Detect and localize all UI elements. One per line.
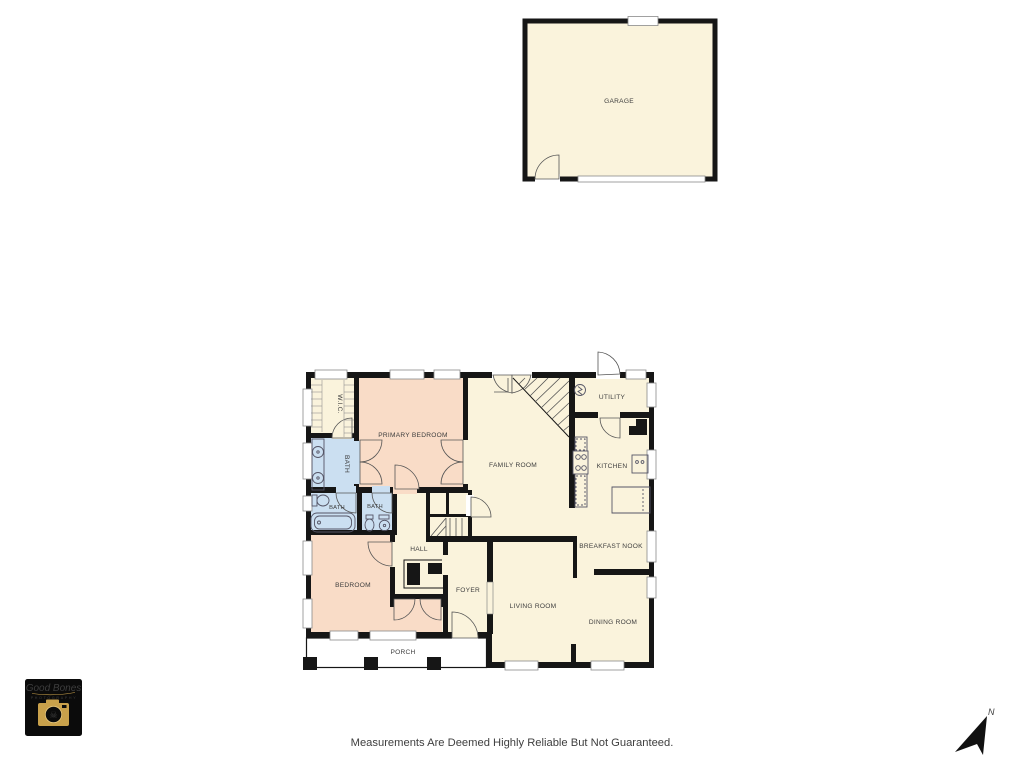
room-label-bath-primary: BATH bbox=[343, 455, 350, 473]
porch-post bbox=[427, 657, 441, 670]
skull-glyph: ☠ bbox=[49, 710, 58, 721]
room-label-living-room: LIVING ROOM bbox=[510, 603, 557, 610]
room-label-kitchen: KITCHEN bbox=[597, 463, 628, 470]
window bbox=[303, 389, 312, 426]
room-label-wic: W.I.C. bbox=[336, 394, 343, 413]
porch-post bbox=[303, 657, 317, 670]
window bbox=[303, 599, 312, 628]
window bbox=[303, 541, 312, 575]
room-label-bedroom: BEDROOM bbox=[335, 582, 371, 589]
floorplan-canvas: GARAGE bbox=[0, 0, 1024, 768]
room-label-breakfast-nook: BREAKFAST NOOK bbox=[579, 543, 643, 550]
room-label-foyer: FOYER bbox=[456, 587, 480, 594]
window bbox=[647, 577, 656, 598]
room-label-bath-hall: BATH bbox=[329, 505, 345, 511]
window bbox=[370, 631, 416, 640]
room-label-hall: HALL bbox=[410, 546, 428, 553]
garage-door-opening bbox=[578, 176, 705, 182]
room-label-utility: UTILITY bbox=[599, 394, 626, 401]
window bbox=[591, 661, 624, 670]
room-label-dining-room: DINING ROOM bbox=[589, 619, 637, 626]
room-label-bath-second: BATH bbox=[367, 504, 383, 510]
brand-logo: Good Bones PHOTOGRAPHY ☠ bbox=[25, 679, 82, 736]
kitchen-chase-notch bbox=[629, 419, 636, 426]
skull-camera-icon: ☠ bbox=[38, 700, 69, 727]
window bbox=[303, 496, 312, 511]
logo-brand-script: Good Bones bbox=[26, 683, 82, 694]
room-label-primary-bedroom: PRIMARY BEDROOM bbox=[378, 432, 447, 439]
closet-divider bbox=[446, 492, 449, 516]
window bbox=[628, 17, 658, 26]
window bbox=[647, 383, 656, 407]
room-label-porch: PORCH bbox=[390, 649, 415, 656]
window bbox=[434, 370, 460, 379]
disclaimer-text: Measurements Are Deemed Highly Reliable … bbox=[351, 737, 674, 749]
room-label-family-room: FAMILY ROOM bbox=[489, 462, 537, 469]
room-label-garage: GARAGE bbox=[604, 98, 634, 105]
garage: GARAGE bbox=[525, 17, 715, 185]
window bbox=[315, 370, 347, 379]
door-arc bbox=[598, 352, 620, 375]
north-arrow: N bbox=[955, 707, 995, 755]
window bbox=[330, 631, 358, 640]
window bbox=[647, 531, 656, 562]
window bbox=[505, 661, 538, 670]
window bbox=[303, 443, 312, 479]
north-arrow-icon bbox=[955, 716, 987, 755]
stove-icon bbox=[573, 451, 588, 474]
logo-subtitle: PHOTOGRAPHY bbox=[31, 696, 78, 700]
porch-post bbox=[364, 657, 378, 670]
window bbox=[390, 370, 424, 379]
north-label: N bbox=[988, 707, 995, 717]
window bbox=[626, 370, 646, 379]
